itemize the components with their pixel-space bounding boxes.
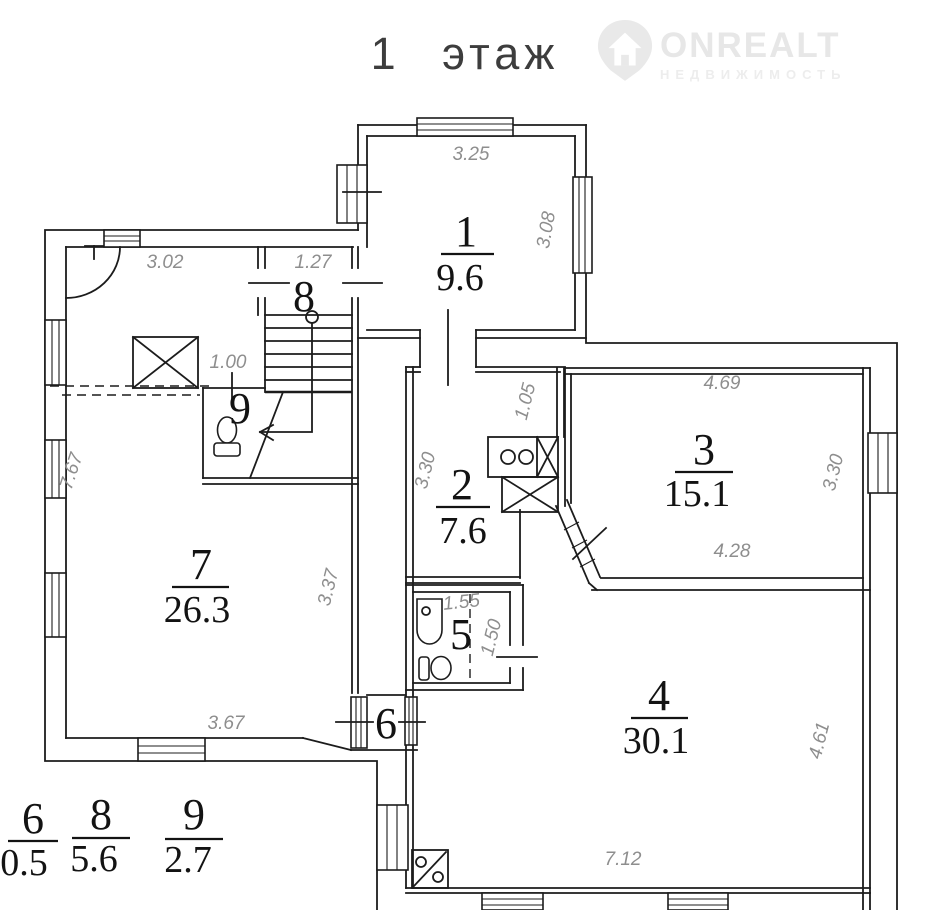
diagonal-wall	[556, 500, 606, 583]
room-4-walls	[406, 888, 870, 910]
dim-room1-top: 3.25	[453, 144, 490, 165]
corner-sink-icon	[66, 246, 120, 298]
room-3-window-right	[868, 433, 897, 493]
room-8-walls	[249, 247, 382, 693]
hall-window-top	[104, 230, 140, 247]
dim-room2-left: 3.30	[411, 450, 440, 491]
dim-room7-right: 3.37	[314, 566, 344, 608]
dim-room3-right: 3.30	[819, 452, 848, 493]
kitchen-sink-icon	[488, 437, 558, 477]
dim-bath-right: 1.50	[477, 617, 506, 658]
floorplan-page: 1 этаж ONREALT НЕДВИЖИМОСТЬ	[0, 0, 931, 910]
dim-kitchen-niche: 1.05	[511, 381, 540, 422]
toilet-icon-bath	[419, 657, 451, 681]
room-3-number: 3	[693, 425, 715, 474]
room-8-number: 8	[293, 272, 315, 321]
bathtub-icon	[417, 599, 442, 644]
room-6-number: 6	[375, 699, 397, 748]
legend-9-number: 9	[183, 790, 205, 839]
room-7-number: 7	[190, 540, 212, 589]
legend-6-area: 0.5	[0, 842, 48, 884]
stove-icon	[412, 850, 448, 888]
room-2-number: 2	[451, 460, 473, 509]
dim-room8-top: 1.27	[295, 252, 333, 273]
room-1-window-top	[417, 118, 513, 136]
dim-hall-top: 3.02	[147, 252, 184, 273]
floorplan-drawing: 1 9.6 2 7.6 3 15.1 4 30.1 5 6 7 26.3 8 9…	[0, 0, 931, 910]
legend-9-area: 2.7	[164, 839, 212, 881]
room-9-number: 9	[229, 384, 251, 433]
kitchen-counter-icon	[502, 477, 558, 512]
dim-room3-bottom: 4.28	[714, 541, 751, 562]
dim-room3-top: 4.69	[704, 373, 741, 394]
dim-room7-bottom: 3.67	[208, 713, 246, 734]
dim-room4-right: 4.61	[805, 720, 834, 761]
legend-8-number: 8	[90, 790, 112, 839]
room-2-area: 7.6	[439, 510, 487, 552]
room-4-window-left	[377, 805, 408, 870]
room-4-area: 30.1	[623, 720, 690, 762]
room-3-area: 15.1	[664, 473, 731, 515]
room-3-walls	[565, 368, 870, 893]
room-1-number: 1	[455, 207, 477, 256]
room-1-area: 9.6	[436, 257, 484, 299]
room-4-windows-bottom	[482, 893, 728, 910]
legend-6-number: 6	[22, 794, 44, 843]
room-4-number: 4	[648, 671, 670, 720]
dim-wc-door: 1.00	[210, 352, 247, 373]
dim-room1-right: 3.08	[533, 210, 560, 250]
room-7-area: 26.3	[164, 589, 231, 631]
dim-room4-bottom: 7.12	[605, 849, 642, 870]
room-5-number: 5	[450, 610, 472, 659]
room-1-window-right	[573, 177, 592, 273]
furnace-icon	[133, 337, 198, 388]
legend: 6 0.5 8 5.6 9 2.7	[0, 790, 223, 884]
legend-8-area: 5.6	[70, 838, 118, 880]
room-7-window-bottom	[138, 738, 205, 761]
dim-bath-top: 1.55	[442, 590, 481, 615]
room-1-window-left	[337, 165, 381, 223]
